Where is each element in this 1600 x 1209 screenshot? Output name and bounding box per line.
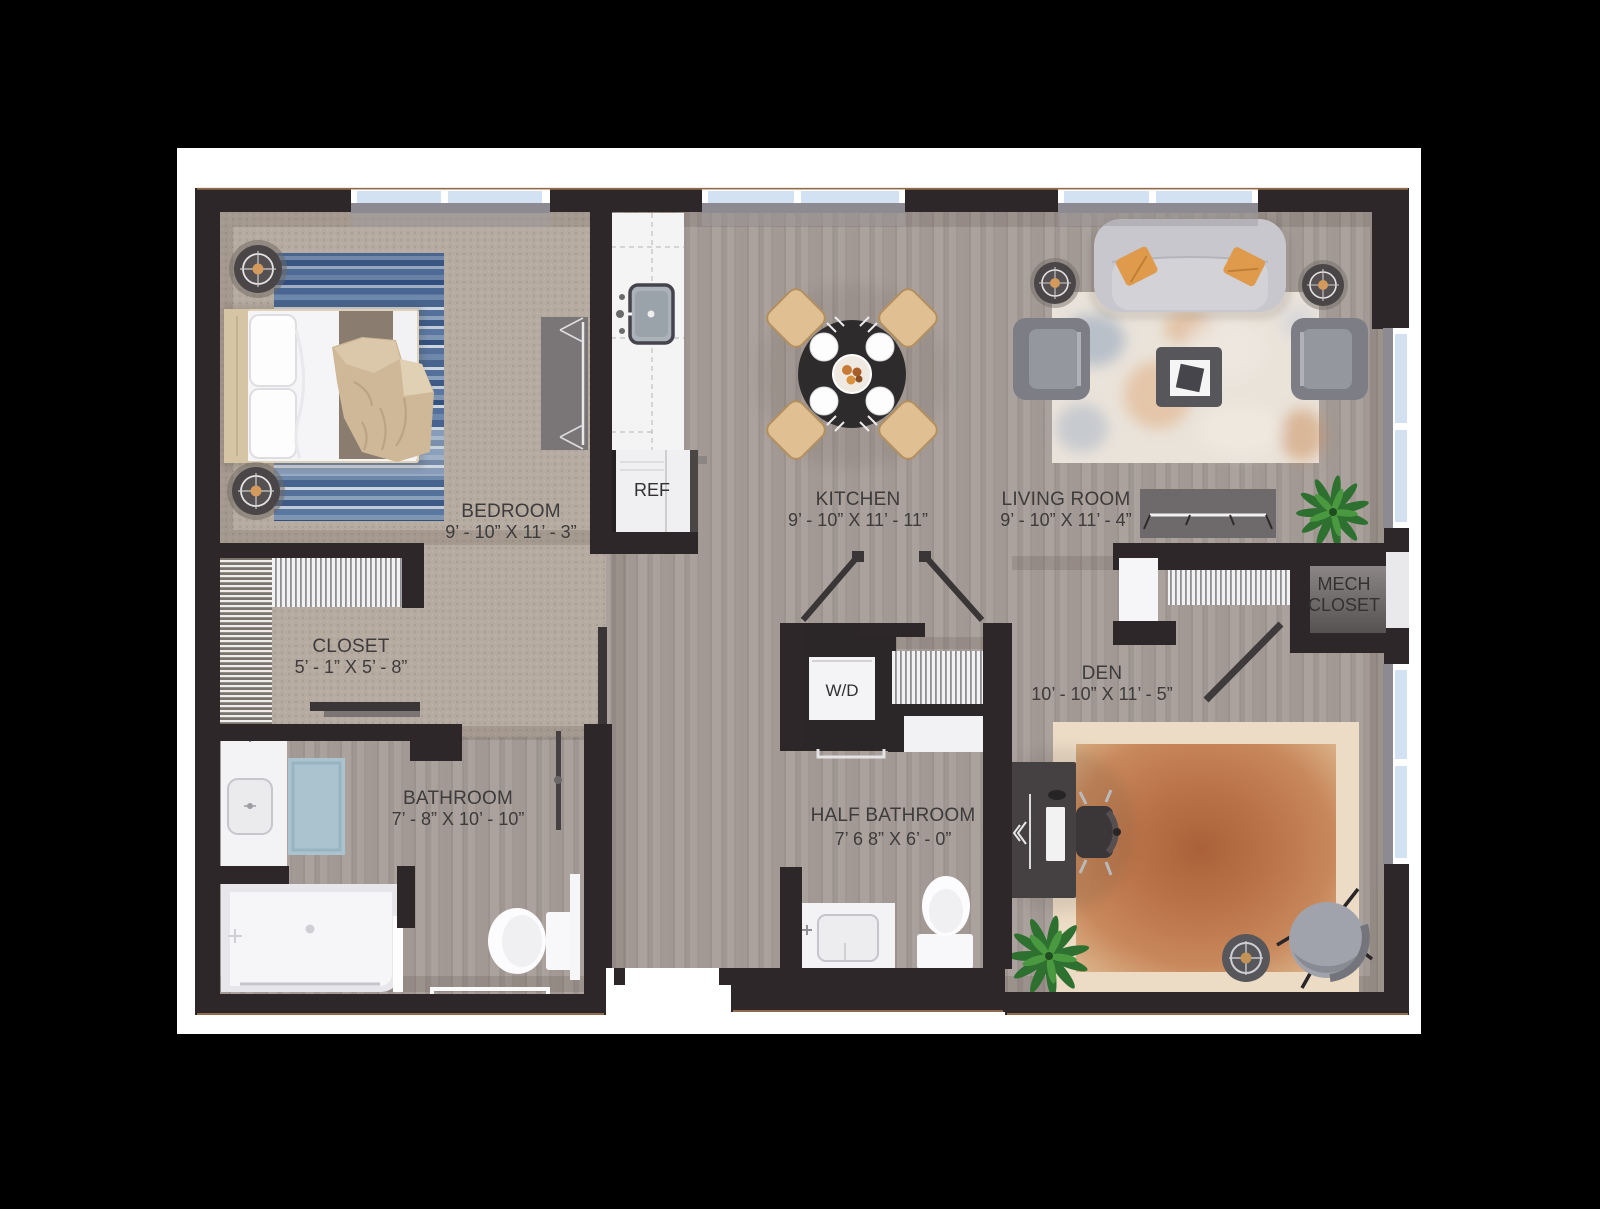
svg-text:W/D: W/D [825, 681, 858, 700]
svg-text:HALF BATHROOM: HALF BATHROOM [811, 805, 976, 826]
svg-text:BEDROOM: BEDROOM [461, 501, 561, 522]
svg-text:DEN: DEN [1082, 663, 1123, 684]
svg-text:BATHROOM: BATHROOM [403, 788, 513, 809]
svg-text:LIVING ROOM: LIVING ROOM [1002, 489, 1131, 510]
svg-text:CLOSET: CLOSET [1308, 595, 1380, 615]
svg-text:9’ - 10” X 11’ - 3”: 9’ - 10” X 11’ - 3” [445, 522, 576, 542]
svg-text:KITCHEN: KITCHEN [816, 489, 901, 510]
svg-text:9’ - 10” X 11’ - 11”: 9’ - 10” X 11’ - 11” [788, 510, 928, 530]
svg-text:10’ - 10” X 11’ - 5”: 10’ - 10” X 11’ - 5” [1031, 684, 1172, 704]
svg-text:5’ - 1” X 5’ - 8”: 5’ - 1” X 5’ - 8” [295, 657, 408, 677]
svg-text:9’ - 10” X 11’ - 4”: 9’ - 10” X 11’ - 4” [1000, 510, 1131, 530]
svg-text:MECH: MECH [1318, 574, 1371, 594]
svg-text:7’ 6 8” X 6’ - 0”: 7’ 6 8” X 6’ - 0” [835, 829, 952, 849]
svg-text:7’ - 8” X 10’ - 10”: 7’ - 8” X 10’ - 10” [392, 809, 525, 829]
svg-text:CLOSET: CLOSET [312, 636, 389, 657]
svg-text:REF: REF [634, 480, 670, 500]
